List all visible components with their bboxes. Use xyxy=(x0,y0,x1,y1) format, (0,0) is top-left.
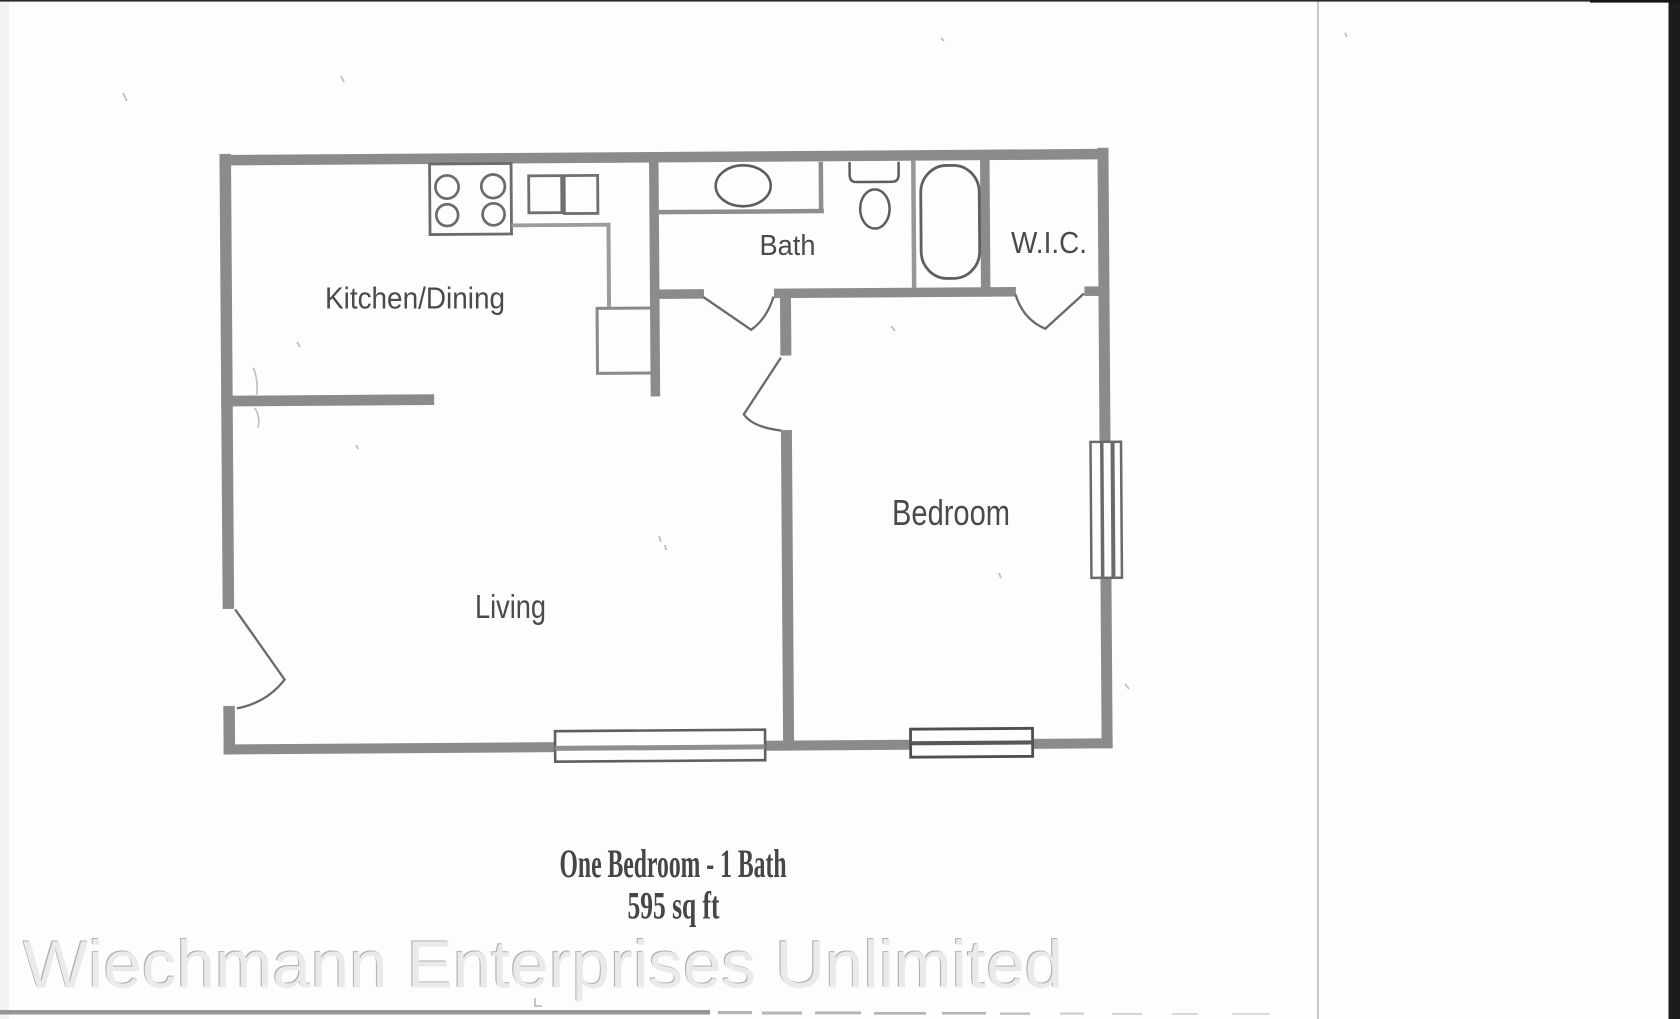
svg-text:Bedroom: Bedroom xyxy=(892,492,1010,533)
svg-text:Kitchen/Dining: Kitchen/Dining xyxy=(325,281,505,316)
svg-text:One Bedroom - 1 Bath: One Bedroom - 1 Bath xyxy=(560,841,787,886)
svg-text:Living: Living xyxy=(475,588,546,625)
svg-text:Bath: Bath xyxy=(760,230,816,262)
svg-text:Wiechmann Enterprises Unlimite: Wiechmann Enterprises Unlimited xyxy=(23,928,1063,1003)
svg-text:595 sq ft: 595 sq ft xyxy=(628,885,720,928)
svg-text:W.I.C.: W.I.C. xyxy=(1011,225,1087,260)
